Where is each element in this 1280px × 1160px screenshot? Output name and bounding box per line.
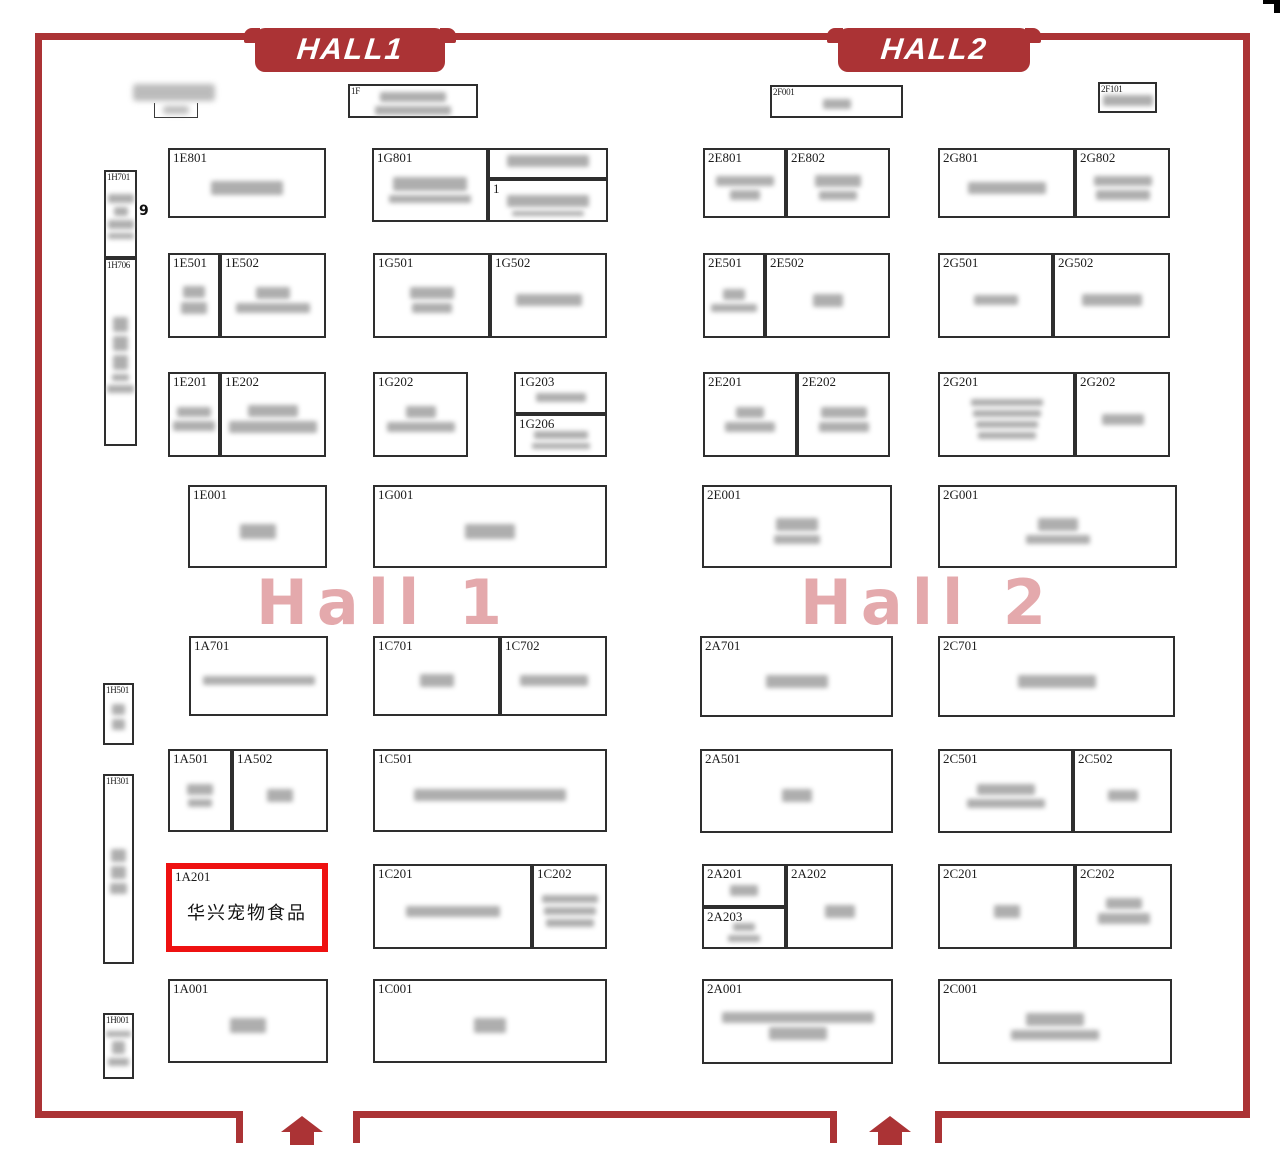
booth-blurred-content <box>375 389 466 455</box>
blurred-text <box>1103 95 1153 106</box>
blurred-text <box>133 84 215 101</box>
booth-1A701: 1A701 <box>189 636 328 716</box>
blurred-text <box>256 287 290 299</box>
booth-label: 1A501 <box>170 751 230 766</box>
booth-2A001: 2A001 <box>702 979 893 1064</box>
booth-blurred-content <box>106 182 135 256</box>
booth-blurred-content <box>490 196 606 220</box>
blurred-text <box>532 443 590 449</box>
booth-1A201: 1A201华兴宠物食品 <box>166 863 328 952</box>
booth-blurred-content <box>1077 165 1168 216</box>
booth-blurred-content <box>170 389 218 455</box>
booth-label: 2F101 <box>1100 84 1155 94</box>
booth-1H501: 1H501 <box>103 683 134 745</box>
booth-label: 1G001 <box>375 487 605 502</box>
blurred-text <box>375 106 451 115</box>
blurred-text <box>106 1031 131 1037</box>
booth-label: 2E001 <box>704 487 890 502</box>
booth-label: 1E202 <box>222 374 324 389</box>
booth-1C501: 1C501 <box>373 749 607 832</box>
booth-1G206: 1G206 <box>514 414 607 457</box>
blurred-text <box>1108 790 1138 801</box>
booth-1C701: 1C701 <box>373 636 500 716</box>
blurred-text <box>1102 414 1144 425</box>
booth-label: 2G802 <box>1077 150 1168 165</box>
arrow-roof <box>281 1116 323 1132</box>
blurred-text <box>968 182 1046 194</box>
booth-2E801: 2E801 <box>703 148 786 218</box>
booth-label: 2E202 <box>799 374 888 389</box>
booth-1G202: 1G202 <box>373 372 468 457</box>
blurred-text <box>1106 898 1142 909</box>
blurred-text <box>393 177 467 191</box>
blurred-text <box>774 535 820 544</box>
blurred-text <box>187 784 213 795</box>
booth-label: 2A201 <box>704 866 784 881</box>
blurred-text <box>542 895 598 903</box>
booth-blurred-content <box>106 270 135 444</box>
blurred-text <box>111 849 126 862</box>
booth-blurred-content <box>516 431 605 455</box>
blurred-text <box>730 885 758 896</box>
booth-1A001: 1A001 <box>168 979 328 1063</box>
exhibition-floorplan: HALL1 HALL2 Hall 1 Hall 2 9 1F2F0012F101… <box>0 0 1280 1160</box>
booth-blurred-content <box>490 150 606 177</box>
booth-label: 1G203 <box>516 374 605 389</box>
booth-label: 2G201 <box>940 374 1073 389</box>
booth-2A701: 2A701 <box>700 636 893 717</box>
blurred-text <box>108 1058 129 1066</box>
booth-2E502: 2E502 <box>765 253 890 338</box>
blurred-text <box>512 211 584 216</box>
blurred-text <box>978 432 1036 439</box>
blurred-text <box>474 1018 506 1033</box>
booth-label: 2E201 <box>705 374 795 389</box>
booth-blurred-content <box>170 165 324 216</box>
booth-blurred-content <box>799 389 888 455</box>
booth-2E501: 2E501 <box>703 253 765 338</box>
arrow-roof <box>869 1116 911 1132</box>
booth-label: 2G801 <box>940 150 1073 165</box>
blurred-text <box>813 294 843 307</box>
booth-blurred-content <box>705 165 784 216</box>
booth-1G203: 1G203 <box>514 372 607 414</box>
booth-label: 1E201 <box>170 374 218 389</box>
booth-1F: 1F <box>348 84 478 118</box>
booth-blurred-content <box>374 165 486 220</box>
booth-2E001: 2E001 <box>702 485 892 568</box>
hall1-banner-label: HALL1 <box>295 33 405 67</box>
booth-1G801: 1G801 <box>372 148 488 222</box>
booth-label: 1G501 <box>375 255 488 270</box>
blurred-text <box>520 675 588 686</box>
blurred-text <box>163 106 189 114</box>
booth-2C701: 2C701 <box>938 636 1175 717</box>
blurred-text <box>725 422 775 432</box>
blurred-text <box>823 99 851 109</box>
booth-label: 1C202 <box>534 866 605 881</box>
blurred-text <box>113 336 128 351</box>
booth-blurred-content <box>704 924 784 947</box>
blurred-text <box>112 1041 125 1054</box>
blurred-text <box>188 799 212 807</box>
booth-label: 1C701 <box>375 638 498 653</box>
blurred-text <box>1082 294 1142 306</box>
booth-blurred-content <box>940 653 1173 715</box>
blurred-text <box>534 431 588 439</box>
blurred-text <box>107 385 134 393</box>
booth-blurred-content <box>375 766 605 830</box>
booth-label: 2A202 <box>788 866 891 881</box>
booth-label: 1E801 <box>170 150 324 165</box>
booth-blurred-content <box>704 502 890 566</box>
booth-label: 1G206 <box>516 416 605 431</box>
arrow-base <box>290 1132 314 1145</box>
blurred-text <box>507 195 589 207</box>
booth-2G201: 2G201 <box>938 372 1075 457</box>
booth-label: 1H701 <box>106 172 135 182</box>
booth-blurred-content <box>170 996 326 1061</box>
booth-blurred-content <box>940 165 1073 216</box>
booth-label: 2C202 <box>1077 866 1170 881</box>
blurred-text <box>177 407 211 417</box>
blurred-text <box>1026 1013 1084 1026</box>
booth-2C001: 2C001 <box>938 979 1172 1064</box>
blurred-text <box>516 294 582 306</box>
booth-2G502: 2G502 <box>1053 253 1170 338</box>
blurred-text <box>211 181 283 195</box>
booth-label: 1H501 <box>105 685 132 695</box>
booth-blurred-content <box>375 653 498 714</box>
booth-1E001: 1E001 <box>188 485 327 568</box>
blurred-text <box>267 789 293 802</box>
blurred-text <box>412 303 452 313</box>
blurred-text <box>1026 535 1090 544</box>
booth-2G202: 2G202 <box>1075 372 1170 457</box>
booth-2C501: 2C501 <box>938 749 1073 833</box>
blurred-text <box>420 674 454 687</box>
blurred-text <box>971 399 1043 406</box>
booth-2E202: 2E202 <box>797 372 890 457</box>
blurred-text <box>994 905 1020 918</box>
blurred-text <box>183 286 205 298</box>
booth-blurred-content <box>1100 94 1155 111</box>
booth-label: 2A001 <box>704 981 891 996</box>
booth-label: 2A701 <box>702 638 891 653</box>
booth-1E202: 1E202 <box>220 372 326 457</box>
booth-1E501: 1E501 <box>168 253 220 338</box>
blurred-text <box>546 919 594 927</box>
booth-label: 1E501 <box>170 255 218 270</box>
hall1-banner: HALL1 <box>255 28 445 72</box>
booth-label: 2F001 <box>772 87 901 97</box>
blurred-text <box>1094 176 1152 186</box>
booth-blurred-content <box>1077 881 1170 947</box>
booth-2F001: 2F001 <box>770 85 903 118</box>
booth-blurred-content <box>788 165 888 216</box>
booth-label: 2C201 <box>940 866 1073 881</box>
booth-blurred-content <box>105 786 132 962</box>
booth-label: 2C001 <box>940 981 1170 996</box>
blurred-text <box>819 422 869 432</box>
blurred-text <box>240 524 276 539</box>
booth-label: 2C701 <box>940 638 1173 653</box>
blurred-text <box>113 317 128 332</box>
booth-label: 1G801 <box>374 150 486 165</box>
booth-label: 1G502 <box>492 255 605 270</box>
booth-1C001: 1C001 <box>373 979 607 1063</box>
blurred-text <box>406 406 436 418</box>
booth-blurred-content <box>702 653 891 715</box>
booth-2C201: 2C201 <box>938 864 1075 949</box>
blurred-text <box>821 407 867 418</box>
blurred-text <box>230 1018 266 1033</box>
blurred-text <box>536 393 586 402</box>
booth-blurred-content <box>105 1025 132 1077</box>
blurred-text <box>108 194 134 203</box>
booth-blurred-content <box>222 270 324 336</box>
booth-1C201: 1C201 <box>373 864 532 949</box>
blurred-text <box>406 906 500 917</box>
blurred-text <box>815 175 861 187</box>
booth-1H701: 1H701 <box>104 170 137 258</box>
booth-1H706: 1H706 <box>104 258 137 446</box>
blurred-text <box>1096 190 1150 200</box>
blurred-text <box>973 410 1041 417</box>
blurred-text <box>248 405 298 417</box>
blurred-text <box>110 883 127 894</box>
entrance-arrow-icon <box>281 1116 323 1145</box>
booth-1E801: 1E801 <box>168 148 326 218</box>
booth-blurred-content <box>375 270 488 336</box>
booth-blurred-content <box>170 270 218 336</box>
booth-label: 2C502 <box>1075 751 1170 766</box>
booth-blurred-content <box>940 996 1170 1062</box>
booth-blurred-content <box>502 653 605 714</box>
booth-blurred-content <box>234 766 326 830</box>
blurred-text <box>114 207 128 216</box>
booth-label: 2E801 <box>705 150 784 165</box>
blurred-text <box>112 719 125 730</box>
booth-blurred-content <box>1055 270 1168 336</box>
booth-label: 2E501 <box>705 255 763 270</box>
booth-layer: 1F2F0012F1011H7011H7061H5011H3011H0011E8… <box>0 0 1280 1160</box>
booth-1C702: 1C702 <box>500 636 607 716</box>
booth-label: 1E001 <box>190 487 325 502</box>
blurred-text <box>766 675 828 688</box>
booth-label: 1E502 <box>222 255 324 270</box>
booth-2E201: 2E201 <box>703 372 797 457</box>
blurred-text <box>782 789 812 802</box>
blurred-text <box>722 1012 874 1023</box>
blurred-text <box>387 422 455 432</box>
blurred-text <box>173 421 215 431</box>
booth-1G801-annex-bottom: 1 <box>488 179 608 222</box>
blurred-text <box>203 676 315 685</box>
blurred-text <box>723 289 745 300</box>
hall2-banner-label: HALL2 <box>879 33 989 67</box>
booth-2A501: 2A501 <box>700 749 893 833</box>
booth-blurred-content <box>492 270 605 336</box>
blurred-text <box>113 355 128 370</box>
booth-label: 2G501 <box>940 255 1051 270</box>
booth-label: 1C001 <box>375 981 605 996</box>
booth-label: 2A203 <box>704 909 784 924</box>
booth-label: 2A501 <box>702 751 891 766</box>
aisle-number-label: 9 <box>139 203 149 219</box>
booth-label: 2E802 <box>788 150 888 165</box>
booth-blurred-content <box>705 270 763 336</box>
blurred-text <box>977 784 1035 795</box>
blurred-text <box>974 295 1018 305</box>
booth-1G001: 1G001 <box>373 485 607 568</box>
booth-blurred-content <box>772 97 901 116</box>
blurred-text <box>776 518 818 531</box>
blurred-text <box>112 374 129 381</box>
booth-2E802: 2E802 <box>786 148 890 218</box>
booth-blurred-content <box>940 270 1051 336</box>
booth-label: 1A201 <box>172 869 322 884</box>
booth-blurred-content <box>1075 766 1170 831</box>
booth-blurred-content <box>704 996 891 1062</box>
booth-1G501: 1G501 <box>373 253 490 338</box>
blurred-text <box>380 92 446 102</box>
corner-scan-mark <box>1274 0 1280 13</box>
booth-blurred-content <box>375 502 605 566</box>
booth-exhibitor-name: 华兴宠物食品 <box>172 884 322 946</box>
booth-blurred-content <box>704 881 784 905</box>
booth-2C502: 2C502 <box>1073 749 1172 833</box>
blurred-text <box>108 220 134 229</box>
blurred-text <box>976 421 1038 428</box>
booth-blurred-content <box>350 96 476 116</box>
blurred-text <box>1011 1030 1099 1040</box>
booth-blurred-content <box>767 270 888 336</box>
blurred-text <box>111 866 126 879</box>
booth-blurred-content <box>1077 389 1168 455</box>
blurred-text <box>819 191 857 200</box>
booth-blurred-content <box>940 389 1073 455</box>
booth-label: 2E502 <box>767 255 888 270</box>
booth-label: 1 <box>490 181 606 196</box>
hall2-banner: HALL2 <box>838 28 1030 72</box>
blurred-text <box>112 704 125 715</box>
booth-label: 2G502 <box>1055 255 1168 270</box>
booth-2A202: 2A202 <box>786 864 893 949</box>
blurred-text <box>716 176 774 186</box>
booth-label: 1A502 <box>234 751 326 766</box>
blurred-text <box>967 799 1045 808</box>
booth-2F101: 2F101 <box>1098 82 1157 113</box>
blurred-text <box>181 302 207 314</box>
booth-blurred-content <box>705 389 795 455</box>
booth-blurred-content <box>516 389 605 412</box>
booth-label: 1C702 <box>502 638 605 653</box>
blurred-text <box>465 524 515 539</box>
blurred-text <box>711 304 757 312</box>
booth-blurred-content <box>788 881 891 947</box>
booth-2G802: 2G802 <box>1075 148 1170 218</box>
booth-2C202: 2C202 <box>1075 864 1172 949</box>
blurred-text <box>108 233 134 239</box>
blurred-text <box>229 421 317 433</box>
booth-1A502: 1A502 <box>232 749 328 832</box>
blurred-text <box>410 287 454 299</box>
booth-1C202: 1C202 <box>532 864 607 949</box>
booth-1H001: 1H001 <box>103 1013 134 1079</box>
blurred-text <box>1038 518 1078 531</box>
blurred-text <box>544 907 596 915</box>
booth-blurred-content <box>534 881 605 947</box>
entrance-arrow-icon <box>869 1116 911 1145</box>
booth-label: 2C501 <box>940 751 1071 766</box>
booth-2A203: 2A203 <box>702 907 786 949</box>
booth-2G801: 2G801 <box>938 148 1075 218</box>
booth-blurred-content <box>702 766 891 831</box>
blurred-text <box>769 1027 827 1040</box>
booth-1A501: 1A501 <box>168 749 232 832</box>
booth-blurred-content <box>190 502 325 566</box>
booth-blurred-content <box>222 389 324 455</box>
booth-label: 2G001 <box>940 487 1175 502</box>
arrow-base <box>878 1132 902 1145</box>
blurred-text <box>730 190 760 200</box>
blurred-text <box>825 905 855 918</box>
blurred-text <box>733 923 755 931</box>
blurred-text <box>414 789 566 801</box>
blurred-text <box>389 195 471 203</box>
blurred-text <box>1098 913 1150 924</box>
booth-blurred-content <box>170 766 230 830</box>
booth-label: 1G202 <box>375 374 466 389</box>
booth-label: 1H301 <box>105 776 132 786</box>
booth-1E201: 1E201 <box>168 372 220 457</box>
booth-label: 1C201 <box>375 866 530 881</box>
booth-label: 1C501 <box>375 751 605 766</box>
booth-blurred-content <box>375 996 605 1061</box>
booth-2G001: 2G001 <box>938 485 1177 568</box>
blurred-text <box>736 407 764 418</box>
booth-blurred-content <box>940 881 1073 947</box>
booth-2G501: 2G501 <box>938 253 1053 338</box>
booth-blurred-content <box>191 653 326 714</box>
booth-blurred-content <box>940 766 1071 831</box>
booth-label: 1H706 <box>106 260 135 270</box>
booth-label: 1H001 <box>105 1015 132 1025</box>
blurred-text <box>507 155 589 167</box>
blurred-text <box>728 935 760 942</box>
booth-label: 2G202 <box>1077 374 1168 389</box>
booth-1E502: 1E502 <box>220 253 326 338</box>
booth-label: 1A701 <box>191 638 326 653</box>
booth-1G801-annex-top <box>488 148 608 179</box>
booth-blurred-content <box>105 695 132 743</box>
booth-label: 1A001 <box>170 981 326 996</box>
booth-2A201: 2A201 <box>702 864 786 907</box>
booth-blurred-content <box>375 881 530 947</box>
booth-1H301: 1H301 <box>103 774 134 964</box>
blurred-text <box>236 303 310 313</box>
blurred-text <box>1018 675 1096 688</box>
booth-1G502: 1G502 <box>490 253 607 338</box>
booth-blurred-content <box>940 502 1175 566</box>
